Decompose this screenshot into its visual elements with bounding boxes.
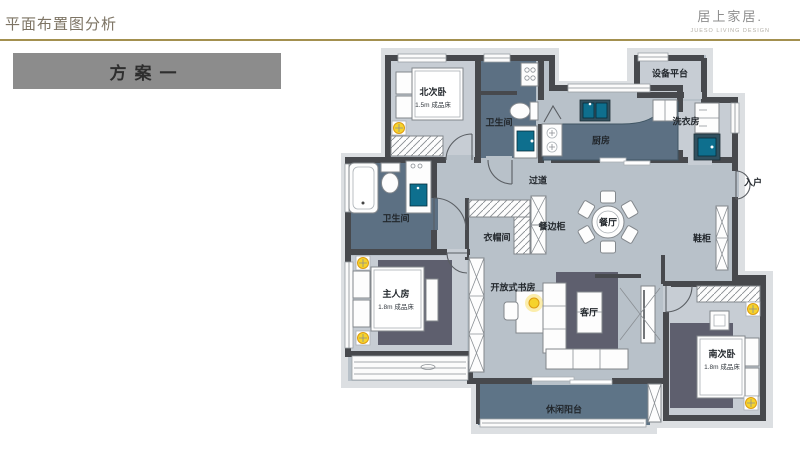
- shoe-cabinet: [716, 206, 728, 270]
- bay-window: [352, 356, 468, 380]
- balcony-glazing: [480, 419, 646, 427]
- floor-plan-drawing: [0, 0, 800, 450]
- floor-plan: 北次卧1.5m 成品床 卫生间 设备平台 洗衣房 厨房 过道 入户 鞋柜 餐厅 …: [0, 0, 800, 450]
- balcony-cabinet: [648, 384, 661, 422]
- laundry-fixtures: [694, 103, 720, 160]
- presentation-slide: 平面布置图分析 居上家居. JUESO LIVING DESIGN 方案一: [0, 0, 800, 450]
